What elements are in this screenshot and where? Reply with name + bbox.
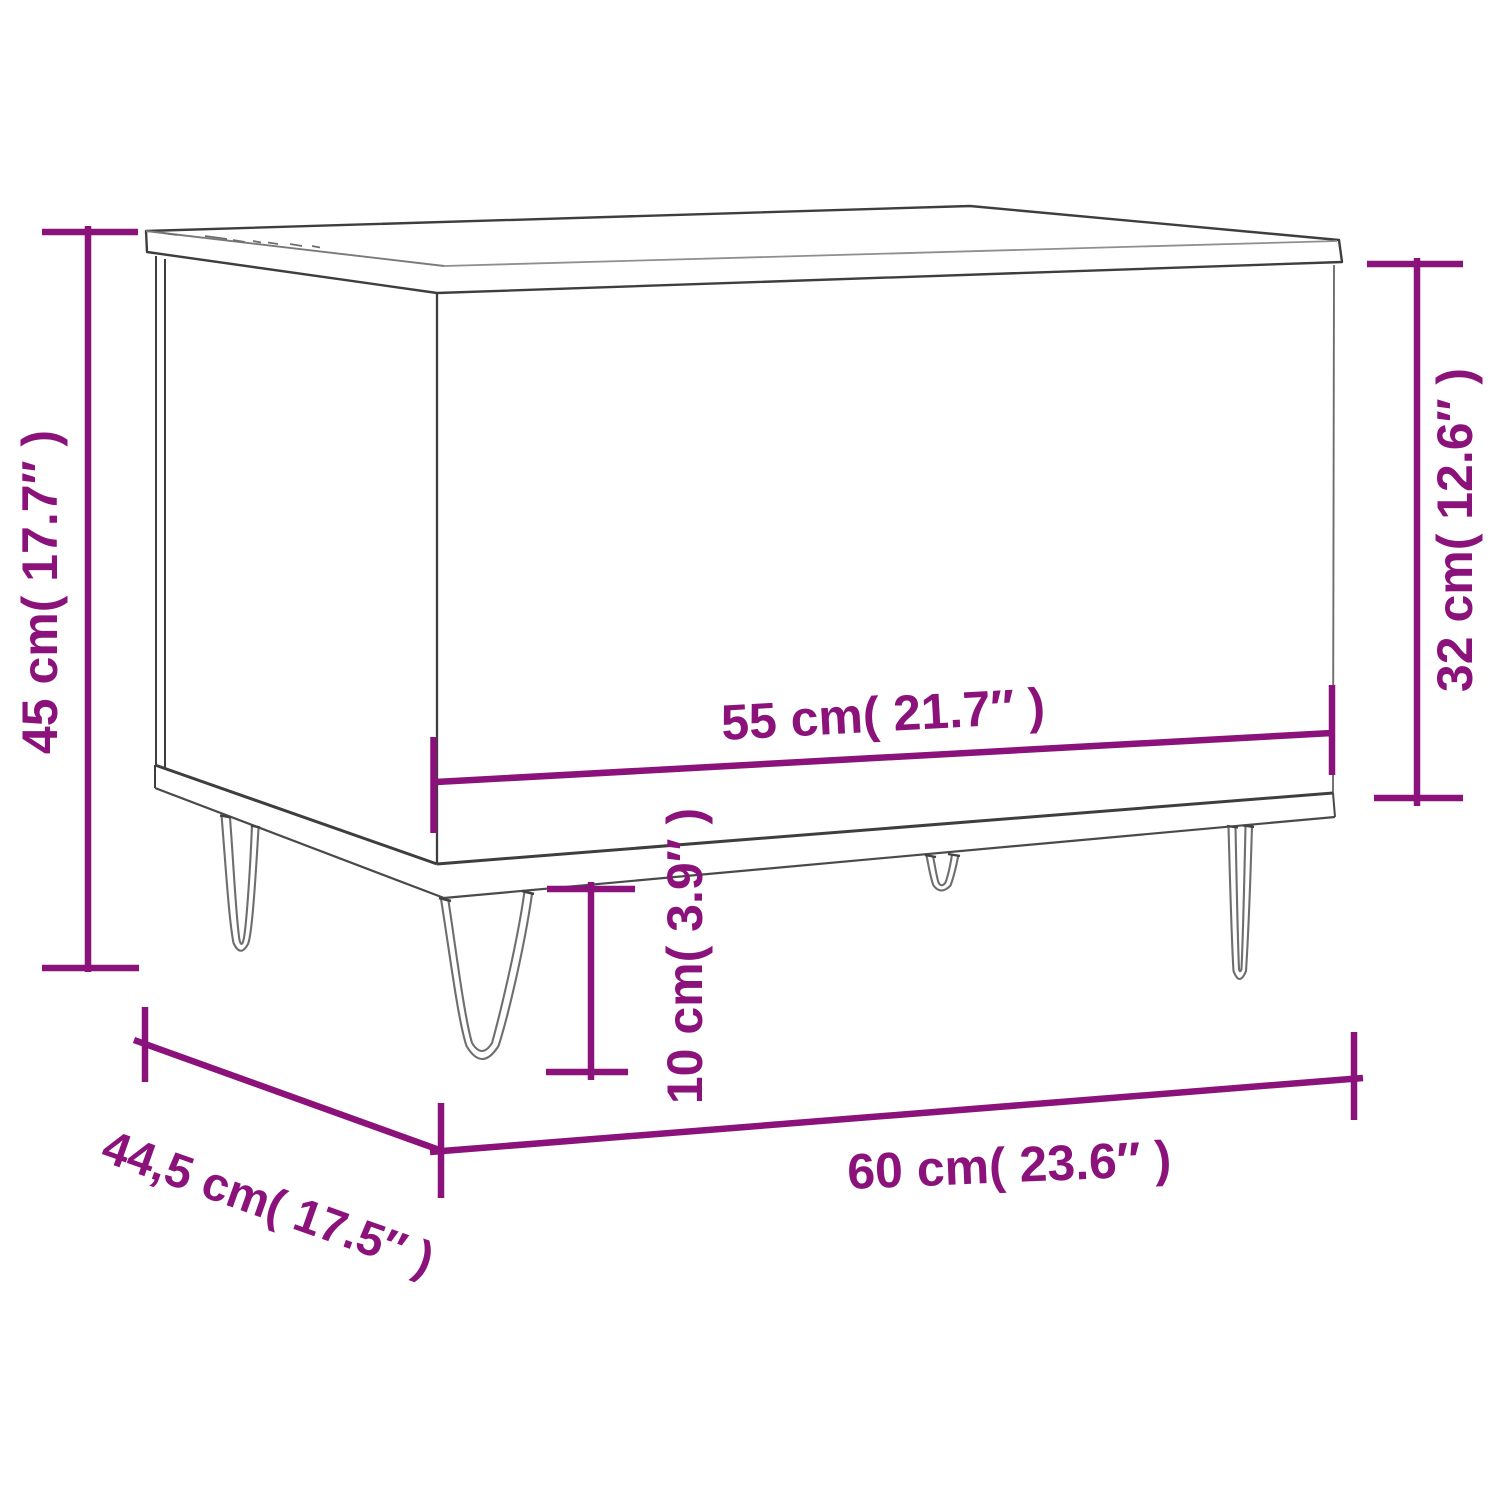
svg-text:10 cm( 3.9″ ): 10 cm( 3.9″ ) <box>657 808 713 1104</box>
svg-text:45 cm( 17.7″ ): 45 cm( 17.7″ ) <box>12 430 68 754</box>
svg-text:32 cm( 12.6″ ): 32 cm( 12.6″ ) <box>1427 368 1483 692</box>
